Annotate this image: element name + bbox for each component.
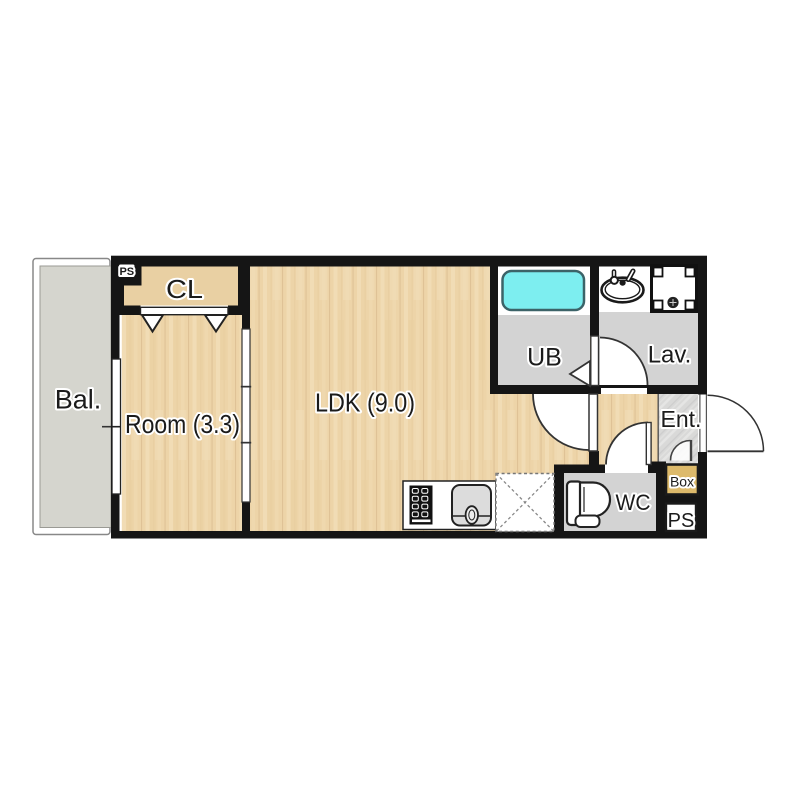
svg-text:Lav.: Lav. [648,342,692,369]
svg-text:Room (3.3): Room (3.3) [125,409,240,439]
svg-text:PS: PS [119,266,134,278]
svg-text:WC: WC [616,490,651,515]
svg-text:Box: Box [670,474,694,490]
svg-text:PS: PS [668,510,695,532]
svg-text:CL: CL [166,274,203,304]
svg-text:Ent.: Ent. [661,406,702,432]
svg-text:UB: UB [527,344,562,372]
svg-text:LDK (9.0): LDK (9.0) [315,388,415,418]
svg-text:Bal.: Bal. [55,385,102,415]
